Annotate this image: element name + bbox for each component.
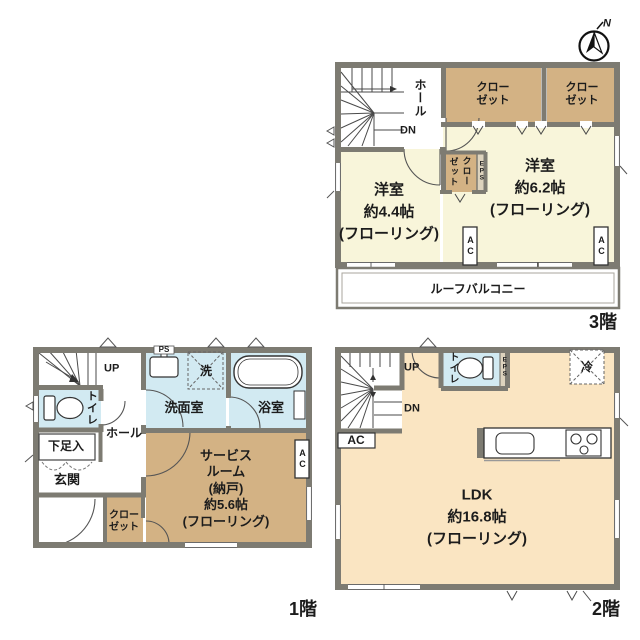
washroom-label: 洗面室 xyxy=(164,400,203,416)
closet-1f-label: クローゼット xyxy=(109,510,139,534)
stairs-2f-dn-label: DN xyxy=(404,403,420,416)
floor2-plan xyxy=(335,338,628,601)
bathroom-label: 浴室 xyxy=(258,400,284,416)
ac-2f-label: AC xyxy=(347,434,364,446)
toilet-2f-label: トイレ xyxy=(446,352,458,385)
floor1-label: 1階 xyxy=(289,600,317,618)
floor2-label: 2階 xyxy=(592,600,620,618)
eps-3f-label: EPS xyxy=(478,161,485,182)
room-44-label: 洋室約4.4帖(フローリング) xyxy=(339,179,439,244)
room-62-label: 洋室約6.2帖(フローリング) xyxy=(490,155,590,220)
stairs-2f-up-label: UP xyxy=(404,362,419,375)
closet-3f-small-label-col2: ゼット xyxy=(449,157,458,187)
shoe-box-label: 下足入 xyxy=(48,440,84,452)
closet-3f-1-label: クローゼット xyxy=(477,81,510,106)
kitchen-counter xyxy=(484,428,611,461)
entrance-label: 玄関 xyxy=(54,472,80,488)
eps-2f-label: EPS xyxy=(501,357,508,378)
stairs-1f-up-label: UP xyxy=(104,363,119,376)
ac-3f-left-label: AC xyxy=(466,235,475,257)
ac-3f-right-label: AC xyxy=(597,235,606,257)
toilet-2f-icon xyxy=(458,357,494,379)
toilet-1f-label: トイレ xyxy=(85,390,98,426)
closet-3f-2-label: クローゼット xyxy=(566,81,599,106)
hall-3f-label: ホール xyxy=(414,79,426,118)
floor3-label: 3階 xyxy=(589,313,617,331)
refrigerator-label: 冷 xyxy=(581,361,593,373)
floorplan-page: N ホール DN クローゼット クローゼット 洋室約6.2帖(フローリング) 洋… xyxy=(0,0,640,640)
closet-3f-small-label-col1: クロー xyxy=(462,156,471,186)
ps-label: PS xyxy=(159,346,170,354)
hall-1f-label: ホール xyxy=(106,427,142,439)
ldk-label: LDK約16.8帖(フローリング) xyxy=(427,484,527,549)
floorplan-canvas xyxy=(0,0,640,640)
ac-1f-label: AC xyxy=(298,448,307,470)
laundry-label: 洗 xyxy=(200,365,212,377)
service-room-label: サービスルーム (納戸)約5.6帖 (フローリング) xyxy=(183,448,270,530)
toilet-1f-icon xyxy=(44,396,83,420)
compass-north-label: N xyxy=(603,19,611,30)
stairs-3f-dn-label: DN xyxy=(400,125,416,138)
roof-balcony-label: ルーフバルコニー xyxy=(430,283,525,295)
sink-icon xyxy=(150,353,178,377)
